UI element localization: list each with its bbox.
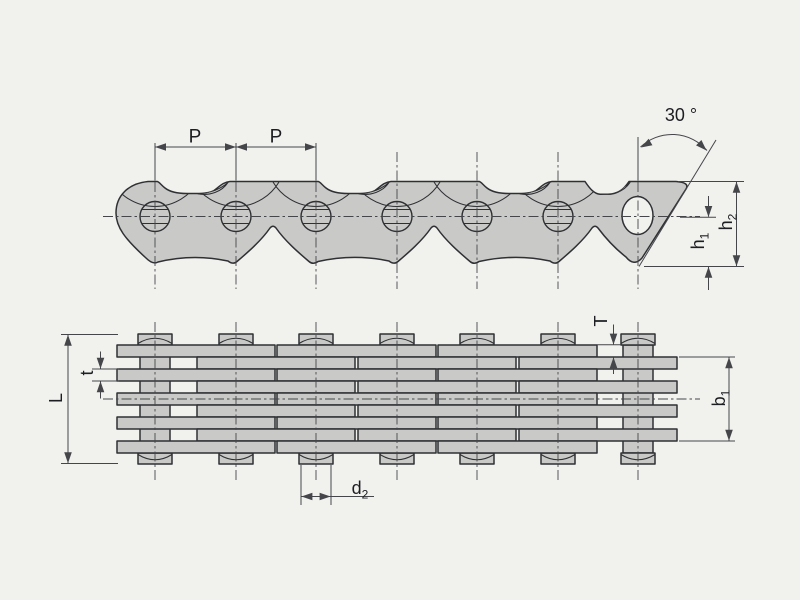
- pitch-dimension-label-2: P: [270, 128, 283, 147]
- dimension-arrowhead: [301, 493, 312, 501]
- link-plate: [277, 417, 436, 429]
- dimension-arrowhead: [725, 430, 733, 441]
- link-plate: [519, 357, 677, 369]
- dimension-arrowhead: [155, 143, 166, 151]
- link-plate: [519, 381, 677, 393]
- pitch-dimension-label-1: P: [189, 128, 202, 147]
- dimension-arrowhead: [610, 334, 618, 345]
- b1-dimension-label: b1: [710, 390, 728, 407]
- link-plate: [358, 429, 516, 441]
- dimension-arrowhead: [236, 143, 247, 151]
- link-plate: [277, 369, 436, 381]
- link-plate: [197, 405, 355, 417]
- link-plate: [197, 429, 355, 441]
- chain-technical-drawing: P P 30 ° h1 h2 T t L b1 d2: [0, 0, 800, 600]
- link-plate: [438, 417, 597, 429]
- h2-dimension-label: h2: [717, 214, 735, 231]
- dimension-arrowhead: [97, 358, 105, 369]
- side-view: [112, 182, 687, 264]
- link-plate: [358, 405, 516, 417]
- dimension-arrowhead: [64, 335, 72, 346]
- link-plate: [438, 441, 597, 453]
- link-plate: [277, 345, 436, 357]
- link-plate: [197, 357, 355, 369]
- dimension-arrowhead: [705, 267, 713, 278]
- link-plate: [519, 405, 677, 417]
- T-dimension-label: T: [592, 316, 610, 327]
- link-plate: [519, 429, 677, 441]
- angle-30-label: 30 °: [665, 106, 697, 124]
- dimension-arrowhead: [97, 381, 105, 392]
- dimension-arrowhead: [725, 357, 733, 368]
- link-plate: [117, 369, 275, 381]
- link-plate: [358, 381, 516, 393]
- link-plate: [117, 417, 275, 429]
- dimension-arrowhead: [639, 139, 652, 151]
- link-plate: [438, 369, 597, 381]
- dimension-arrowhead: [705, 206, 713, 217]
- link-plate: [117, 345, 275, 357]
- link-plate: [197, 381, 355, 393]
- L-dimension-label: L: [47, 393, 65, 403]
- dimension-arrowhead: [305, 143, 316, 151]
- dimension-arrowhead: [320, 493, 331, 501]
- link-plate: [358, 357, 516, 369]
- dimension-arrowhead: [64, 452, 72, 463]
- dimension-arrowhead: [733, 255, 741, 266]
- h1-dimension-label: h1: [689, 233, 707, 250]
- link-plate: [277, 441, 436, 453]
- dimension-arrowhead: [733, 182, 741, 193]
- link-plate: [438, 345, 597, 357]
- connecting-pin-hole: [622, 197, 653, 235]
- d2-dimension-label: d2: [352, 479, 369, 497]
- t-dimension-label: t: [78, 370, 96, 375]
- drawing-canvas: [0, 0, 800, 600]
- dimension-arrowhead: [225, 143, 236, 151]
- link-plate: [117, 441, 275, 453]
